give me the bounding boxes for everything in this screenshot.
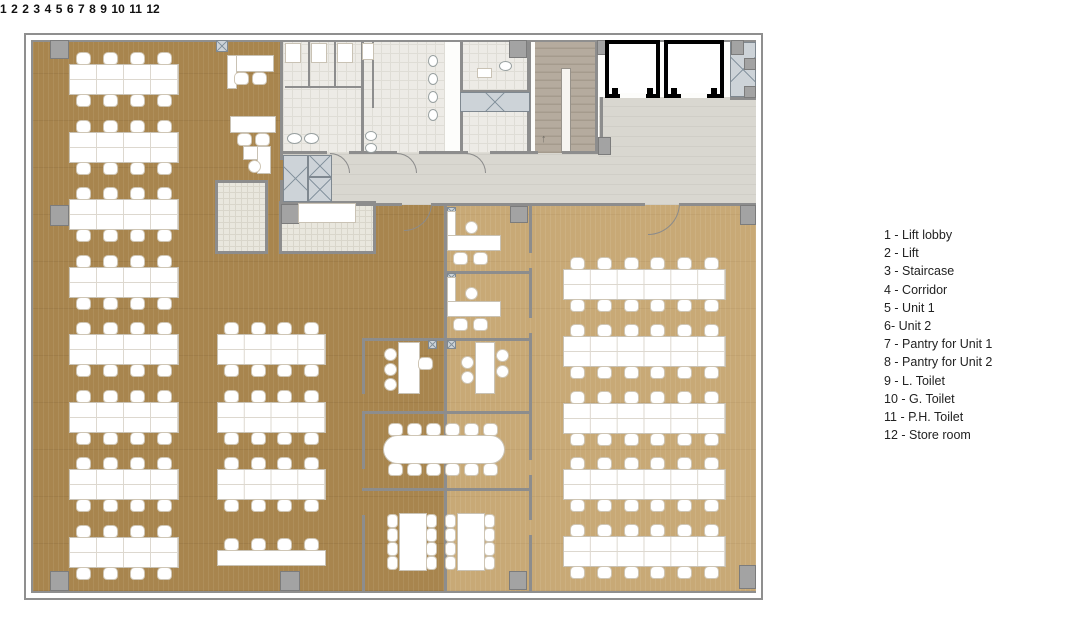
desk-table [564,404,725,433]
chair [104,433,117,444]
chair [131,53,144,64]
round-chair [462,372,473,383]
chair [571,567,584,578]
chair [77,121,90,132]
column [281,204,299,224]
legend-item-lift-lobby: 1 - Lift lobby [884,226,1064,244]
chair [389,464,402,475]
chair [77,568,90,579]
chair [651,325,664,336]
chair [446,464,459,475]
chair [158,323,171,334]
floor-pantry-unit2 [217,182,268,253]
side-chair [485,515,494,527]
chair [158,95,171,106]
wall [280,42,283,160]
furniture-surface [478,69,491,77]
furniture-surface [384,436,504,463]
chair [131,121,144,132]
chair [225,323,238,334]
chair [571,458,584,469]
lift-2-door-jamb-left [671,88,677,95]
side-chair [485,557,494,569]
side-chair [446,515,455,527]
chair [158,188,171,199]
sanitary-fixture [428,91,438,103]
chair [571,300,584,311]
chair [225,391,238,402]
wall [529,411,532,460]
wall [373,201,376,253]
chair [678,525,691,536]
label-unit2: 6 [67,2,74,16]
chair [104,526,117,537]
round-chair [497,350,508,361]
label-ph-toilet: 11 [129,2,142,16]
chair [705,434,718,445]
chair [278,500,291,511]
chair [625,567,638,578]
lift-1-door-jamb-left [612,88,618,95]
chair [598,434,611,445]
label-lift-a: 2 [11,2,18,16]
shaft-hatch [428,340,437,349]
lift-2-door [681,93,707,98]
wall [529,268,532,318]
side-chair [427,543,436,555]
label-pantry-unit1: 7 [78,2,85,16]
chair [598,392,611,403]
shaft-hatch [308,155,332,177]
wall [529,205,532,253]
chair [158,458,171,469]
furniture-surface [258,147,270,173]
wall [529,475,532,520]
wall [279,251,376,254]
furniture-surface [448,278,455,304]
desk-table [564,537,725,566]
chair [651,258,664,269]
chair [77,433,90,444]
wall [215,180,218,253]
chair [225,365,238,376]
chair [625,500,638,511]
desk-table [564,470,725,499]
chair [158,365,171,376]
chair [131,230,144,241]
column [509,40,527,58]
legend-item-unit1: 5 - Unit 1 [884,299,1064,317]
column [744,58,756,70]
chair [625,367,638,378]
chair [705,367,718,378]
wall [334,42,336,88]
chair [158,53,171,64]
column [50,571,69,591]
sanitary-fixture [304,133,319,144]
wall [529,333,532,411]
wall [447,271,529,274]
chair [678,434,691,445]
chair [252,365,265,376]
chair [77,53,90,64]
desk-table [70,470,178,499]
chair [253,73,266,84]
chair [278,365,291,376]
chair [131,298,144,309]
side-chair [427,515,436,527]
chair [252,500,265,511]
chair [278,458,291,469]
chair [678,258,691,269]
chair [474,319,487,330]
round-chair [497,366,508,377]
wall [215,180,268,183]
chair [278,323,291,334]
chair [598,525,611,536]
chair [427,464,440,475]
chair [225,433,238,444]
chair [252,458,265,469]
side-chair [446,543,455,555]
chair [225,458,238,469]
lift-2 [664,40,724,98]
chair [104,95,117,106]
chair [678,325,691,336]
side-chair [485,543,494,555]
legend-item-staircase: 3 - Staircase [884,262,1064,280]
wall [529,535,532,591]
chair [77,458,90,469]
chair [705,392,718,403]
chair [104,500,117,511]
round-chair [385,379,396,390]
chair [678,392,691,403]
desk-table [70,268,178,297]
label-store-room: 12 [146,2,159,16]
chair [305,500,318,511]
chair [77,95,90,106]
chair [131,391,144,402]
chair [474,253,487,264]
chair [77,323,90,334]
chair [256,134,269,145]
chair [419,358,432,369]
sanitary-fixture [365,131,377,141]
chair [278,433,291,444]
chair [571,367,584,378]
column [280,571,300,591]
chair [598,325,611,336]
desk-table [70,335,178,364]
column [740,205,756,225]
chair [131,323,144,334]
chair [278,539,291,550]
chair [651,367,664,378]
lift-1-door-jamb-right [647,88,653,95]
chair [77,188,90,199]
chair [446,424,459,435]
chair [571,500,584,511]
shaft-hatch [283,155,308,202]
staircase-rail [561,68,571,153]
chair [705,458,718,469]
chair [305,391,318,402]
chair [77,500,90,511]
furniture-surface [363,44,373,59]
chair [651,434,664,445]
chair [678,500,691,511]
chair [104,323,117,334]
wall [308,42,310,88]
chair [104,256,117,267]
desk-table [70,403,178,432]
chair [678,567,691,578]
chair [131,458,144,469]
chair [305,323,318,334]
chair [705,258,718,269]
desk-table [70,538,178,567]
side-chair [388,543,397,555]
chair [427,424,440,435]
chair [571,258,584,269]
chair [678,300,691,311]
wall [215,251,268,254]
label-l-toilet: 9 [100,2,107,16]
chair [651,458,664,469]
legend-item-pantry1: 7 - Pantry for Unit 1 [884,335,1064,353]
chair [625,392,638,403]
sanitary-fixture [287,133,302,144]
chair [705,325,718,336]
chair [131,500,144,511]
floor-lift-lobby [599,97,756,157]
chair [131,256,144,267]
side-chair [485,529,494,541]
column [50,205,69,226]
legend-item-lift: 2 - Lift [884,244,1064,262]
chair [131,163,144,174]
chair [158,230,171,241]
round-chair [249,161,260,172]
sanitary-fixture [428,109,438,121]
chair [678,367,691,378]
furniture-surface [476,343,494,393]
round-chair [466,288,477,299]
chair [571,392,584,403]
wall [362,488,531,491]
sanitary-fixture [428,73,438,85]
chair [389,424,402,435]
furniture-surface [448,236,500,250]
furniture-surface [399,343,419,393]
chair [104,391,117,402]
chair [131,188,144,199]
side-chair [427,529,436,541]
chair [158,500,171,511]
desk-table [218,470,325,499]
chair [131,365,144,376]
chair [104,53,117,64]
chair [651,392,664,403]
chair [131,95,144,106]
chair [454,319,467,330]
lift-2-door-jamb-right [711,88,717,95]
column [509,571,527,590]
furniture-surface [299,204,355,222]
furniture-surface [338,44,352,62]
furniture-surface [312,44,326,62]
legend-item-store-room: 12 - Store room [884,426,1064,444]
furniture-surface [448,302,500,316]
chair [625,325,638,336]
chair [651,300,664,311]
round-chair [385,349,396,360]
wall [285,86,363,88]
shaft-hatch [447,340,456,349]
furniture-surface [448,212,455,238]
label-unit1: 5 [56,2,63,16]
chair [252,539,265,550]
desk-table [564,337,725,366]
chair [104,365,117,376]
legend: 1 - Lift lobby 2 - Lift 3 - Staircase 4 … [884,226,1064,444]
chair [305,539,318,550]
chair [104,188,117,199]
chair [252,391,265,402]
desk-table [70,133,178,162]
column [510,206,528,223]
wall [362,411,365,469]
chair [104,230,117,241]
chair [651,567,664,578]
chair [131,433,144,444]
chair [77,256,90,267]
chair [705,300,718,311]
side-chair [446,529,455,541]
chair [705,500,718,511]
label-lift-b: 2 [22,2,29,16]
chair [225,539,238,550]
chair [305,458,318,469]
chair [465,464,478,475]
desk-table [564,270,725,299]
desk-table [218,335,325,364]
chair [705,525,718,536]
chair [484,464,497,475]
side-chair [388,515,397,527]
round-chair [385,364,396,375]
desk-table [70,200,178,229]
chair [131,526,144,537]
chair [651,500,664,511]
chair [77,365,90,376]
legend-item-l-toilet: 9 - L. Toilet [884,372,1064,390]
desk-table [70,65,178,94]
wall [432,203,645,206]
floor-corridor [283,153,756,205]
sanitary-fixture [365,143,377,153]
chair [454,253,467,264]
chair [77,230,90,241]
legend-item-pantry2: 8 - Pantry for Unit 2 [884,353,1064,371]
furniture-surface [231,117,275,132]
chair [158,568,171,579]
furniture-surface [218,551,325,565]
side-chair [427,557,436,569]
column [739,565,756,589]
column [744,86,756,98]
side-chair [446,557,455,569]
label-g-toilet: 10 [111,2,124,16]
chair [625,458,638,469]
column [50,40,69,59]
chair [104,121,117,132]
label-lift-lobby: 1 [0,2,7,16]
chair [408,464,421,475]
chair [104,458,117,469]
round-chair [462,357,473,368]
chair [678,458,691,469]
chair [278,391,291,402]
chair [305,433,318,444]
wall [362,515,365,591]
wall [362,338,365,394]
chair [158,163,171,174]
chair [651,525,664,536]
side-chair [388,557,397,569]
legend-item-g-toilet: 10 - G. Toilet [884,390,1064,408]
side-chair [388,529,397,541]
chair [705,567,718,578]
wall [600,97,603,139]
furniture-surface [286,44,300,62]
label-staircase: 3 [33,2,40,16]
legend-item-ph-toilet: 11 - P.H. Toilet [884,408,1064,426]
lift-1 [605,40,660,98]
chair [104,298,117,309]
wall [265,180,268,253]
sanitary-fixture [499,61,512,71]
lift-1-door [620,93,646,98]
label-corridor: 4 [45,2,52,16]
chair [252,433,265,444]
chair [77,298,90,309]
shaft-hatch [308,177,332,202]
chair [158,121,171,132]
chair [598,500,611,511]
furniture-surface [400,514,426,570]
chair [77,526,90,537]
column [598,137,611,155]
legend-item-corridor: 4 - Corridor [884,281,1064,299]
wall [362,411,531,414]
chair [305,365,318,376]
furniture-surface [228,56,236,88]
legend-item-unit2: 6- Unit 2 [884,317,1064,335]
chair [408,424,421,435]
chair [77,391,90,402]
round-chair [466,222,477,233]
chair [252,323,265,334]
shaft-hatch [216,40,228,52]
chair [598,258,611,269]
desk-table [218,403,325,432]
furniture-surface [458,514,484,570]
chair [77,163,90,174]
sanitary-fixture [428,55,438,67]
wall [362,338,529,341]
